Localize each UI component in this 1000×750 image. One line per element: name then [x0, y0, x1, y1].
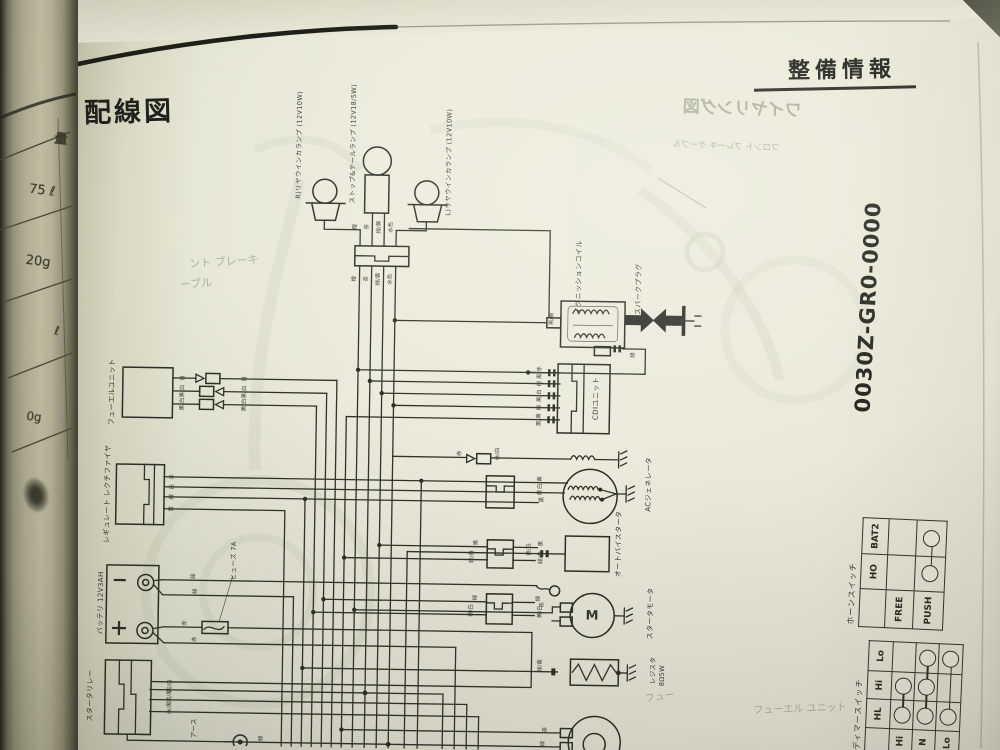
wire-color-label: 茶 — [365, 276, 371, 282]
continuity-cell — [916, 520, 948, 557]
section-header: 整備情報 — [788, 51, 897, 85]
wire-color-label: 水色 — [389, 222, 395, 233]
table-row-header: N — [911, 730, 935, 750]
component-label: スタータモータ — [647, 587, 655, 639]
wire-color-label: 黒 — [474, 540, 480, 546]
table-cell — [886, 555, 916, 591]
wire-color-label: 黒/白 — [243, 386, 249, 399]
component-label: ストップ&テールランプ (12V18/5W) — [349, 84, 358, 204]
continuity-dot — [893, 706, 911, 724]
wire-color-label: 赤/白 — [496, 448, 502, 461]
continuity-cell — [914, 672, 938, 702]
table-col-header: Lo — [868, 641, 893, 672]
wire-color-label: 青 — [181, 375, 187, 381]
side-page-text: 20g — [25, 254, 51, 271]
wire-color-label: 緑 — [537, 596, 543, 602]
wire-color-label: 赤 — [183, 620, 189, 626]
component-label: 8Ω5W — [659, 665, 666, 686]
wire-color-label: 緑 — [170, 494, 176, 500]
wire-color-label: 黄 — [170, 506, 176, 512]
wire-color-label: 黒 — [539, 541, 545, 547]
horn-switch-grid: HO BAT2 FREE PUSH — [858, 517, 948, 631]
continuity-cell — [938, 644, 963, 675]
wire-color-label: 水色 — [389, 274, 395, 285]
wire-color-label: 青 — [243, 376, 249, 382]
wire-color-label: 赤 — [193, 636, 199, 642]
side-page-text: 75 ℓ — [28, 183, 56, 200]
wire-color-label: 橙 — [538, 381, 544, 387]
continuity-dot — [942, 650, 960, 668]
component-label: アース — [191, 718, 198, 738]
continuity-cell — [891, 671, 915, 701]
wire-color-label: 黒/黄 — [537, 413, 543, 426]
previous-page-text-layer: 量75 ℓ20gℓ0g — [0, 0, 78, 750]
table-cell — [892, 642, 916, 673]
component-label: レギュレート レクチファイヤ — [104, 445, 113, 544]
wire-color-label: 橙 — [353, 224, 359, 230]
table-row-header: Hi — [888, 729, 912, 750]
wire-color-label: 緑 — [538, 405, 544, 411]
continuity-dot — [918, 649, 936, 667]
manual-page-photo: ワイヤリング図フロント ブレーキ ケーブルント ブレーキーブルフューエル ユニッ… — [0, 0, 1000, 750]
horn-switch-table: ホーンスイッチ HO BAT2 FREE PUSH — [858, 517, 948, 631]
component-label: ACジェネレータ — [645, 457, 653, 512]
wire-color-label: 黒 — [540, 497, 546, 503]
continuity-dot — [939, 708, 957, 726]
continuity-cell — [935, 702, 960, 732]
wire-color-label: 茶 — [365, 224, 371, 230]
wire-color-label: 緑 — [192, 573, 198, 579]
component-label: CDIユニット — [593, 377, 601, 420]
wire-color-label: 緑/黄 — [470, 550, 476, 563]
component-label: スタータリレー — [87, 670, 95, 722]
wire-color-label: 緑 — [474, 595, 480, 601]
wire-color-label: 緑 — [541, 741, 547, 747]
side-page-text: ℓ — [54, 324, 60, 337]
wire-color-label: 緑/黄 — [377, 221, 383, 234]
wire-color-label: 緑/黄 — [539, 551, 545, 564]
page-title: 配線図 — [84, 89, 175, 130]
side-page-text: 量 — [54, 132, 69, 147]
wire-color-label: 黒/白 — [181, 398, 187, 411]
wire-color-label: 緑 — [259, 736, 265, 742]
component-label: M — [585, 610, 599, 624]
wire-color-label: 黄/白 — [527, 543, 533, 556]
wire-color-label: 黒/黄 — [550, 312, 556, 325]
continuity-cell — [890, 700, 914, 730]
component-label: L)リヤウインカランプ (12V10W) — [445, 109, 453, 216]
table-col-header: Hi — [867, 670, 892, 700]
continuity-dot — [917, 678, 935, 696]
component-label: バッテリ 12V3AH — [97, 571, 105, 634]
continuity-dot — [923, 530, 941, 548]
wire-color-label: 白 — [170, 484, 176, 490]
continuity-dot — [916, 707, 934, 725]
wire-color-label: 緑/黄 — [377, 273, 383, 286]
wire-color-label: 緑 — [194, 588, 200, 594]
wire-color-label: 白/黄 — [538, 476, 544, 489]
wire-color-label: 茶 — [544, 727, 550, 733]
table-col-header: BAT2 — [862, 518, 890, 555]
table-cell — [888, 519, 918, 556]
wire-color-label: 赤/黒 — [168, 701, 174, 714]
component-label: オートバイスタータ — [615, 511, 623, 577]
wire-color-label: 橙 — [353, 276, 359, 282]
table-row-header: FREE — [884, 590, 914, 629]
wire-color-label: 赤 — [458, 451, 464, 457]
table-cell — [859, 589, 887, 628]
wire-color-label: 黄/白 — [469, 604, 475, 617]
wire-color-label: 緑/黄 — [538, 659, 544, 672]
table-cell — [865, 728, 890, 750]
continuity-dot — [921, 565, 939, 583]
continuity-dot — [894, 677, 912, 695]
continuity-cell — [914, 556, 946, 592]
wire-color-label: 黒/白 — [243, 399, 249, 412]
component-label: イグニッションコイル — [575, 240, 584, 314]
wire-color-label: 緑 — [631, 352, 637, 358]
continuity-cell — [915, 643, 939, 674]
dimmer-switch-table: ディマースイッチ HL Hi Lo Hi N Lo — [864, 640, 964, 750]
component-label: ヒューズ 7A — [230, 541, 237, 580]
side-page-text: 0g — [26, 410, 43, 424]
continuity-cell — [913, 701, 937, 731]
component-label: レジスタ — [650, 657, 657, 685]
table-col-header: HO — [860, 554, 888, 590]
wire-color-label: 黒/白 — [538, 389, 544, 402]
table-row-header: Lo — [934, 731, 959, 750]
wire-color-label: 黄/白 — [538, 605, 544, 618]
component-label: フューエルユニット — [108, 359, 116, 426]
component-label: スパークプラグ — [635, 263, 643, 315]
wire-color-label: 黒/赤 — [538, 366, 544, 379]
table-cell — [937, 673, 962, 703]
dimmer-switch-grid: HL Hi Lo Hi N Lo — [864, 640, 964, 750]
component-label: R)リヤウインカランプ (12V10W) — [295, 91, 304, 199]
wire-color-label: 赤 — [170, 474, 176, 480]
table-row-header: PUSH — [912, 591, 944, 630]
table-col-header: HL — [866, 699, 891, 729]
wire-color-label: 黄 — [538, 490, 544, 496]
wire-color-label: 黒/白 — [181, 385, 187, 398]
previous-page-edge: 量75 ℓ20gℓ0g — [0, 0, 78, 750]
